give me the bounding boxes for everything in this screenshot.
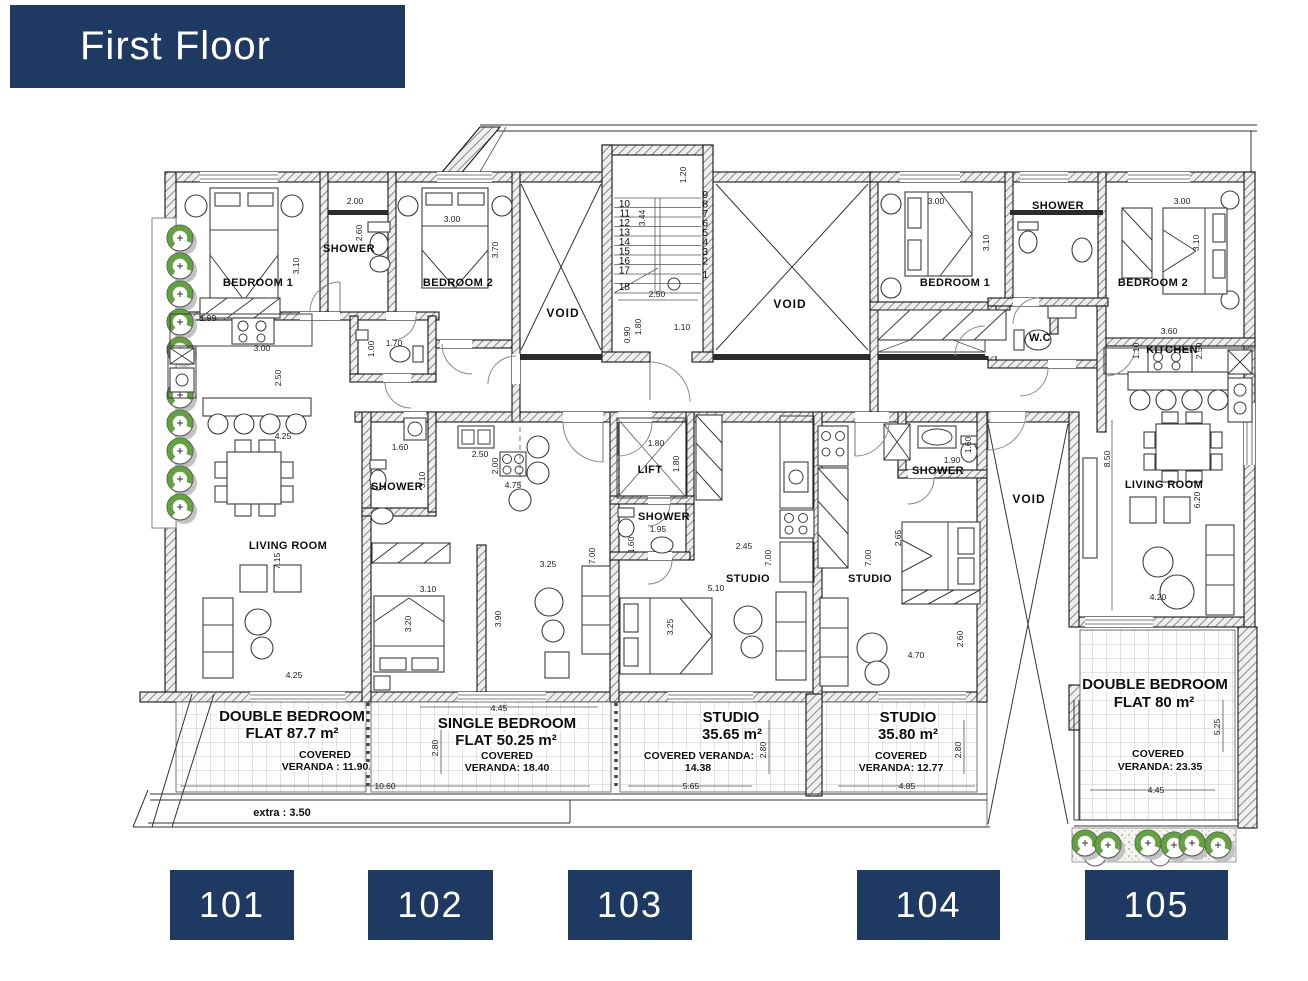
svg-text:6.20: 6.20 — [1192, 491, 1202, 508]
svg-text:7.15: 7.15 — [272, 552, 282, 569]
void-label-right: VOID — [773, 297, 806, 311]
room-label-bedroom2-101: BEDROOM 2 — [423, 277, 493, 289]
svg-text:2.45: 2.45 — [736, 541, 753, 551]
room-label-bedroom2-105: BEDROOM 2 — [1118, 277, 1188, 289]
svg-text:FLAT 50.25 m²: FLAT 50.25 m² — [455, 732, 556, 749]
svg-text:3.00: 3.00 — [444, 214, 461, 224]
room-label-lift: LIFT — [638, 464, 663, 476]
room-label-bedroom1-101: BEDROOM 1 — [223, 277, 293, 289]
svg-text:2.80: 2.80 — [758, 741, 768, 758]
svg-text:3.20: 3.20 — [403, 615, 413, 632]
parapet-edge — [438, 125, 1257, 177]
svg-text:2.50: 2.50 — [472, 449, 489, 459]
svg-text:3.90: 3.90 — [493, 610, 503, 627]
svg-text:35.80 m²: 35.80 m² — [878, 726, 938, 743]
svg-text:1.70: 1.70 — [386, 338, 403, 348]
svg-text:3.25: 3.25 — [540, 559, 557, 569]
void-label-left: VOID — [546, 306, 579, 320]
svg-text:3.10: 3.10 — [981, 234, 991, 251]
svg-text:2.00: 2.00 — [490, 457, 500, 474]
svg-text:1.60: 1.60 — [392, 442, 409, 452]
room-label-shower-102: SHOWER — [371, 481, 423, 493]
svg-text:1.20: 1.20 — [678, 166, 688, 183]
svg-text:VERANDA : 11.90: VERANDA : 11.90 — [282, 761, 369, 773]
void-label-tall: VOID — [1012, 492, 1045, 506]
svg-text:4.45: 4.45 — [1148, 785, 1165, 795]
room-label-bedroom1-105: BEDROOM 1 — [920, 277, 990, 289]
svg-text:1.95: 1.95 — [650, 524, 667, 534]
svg-text:14.38: 14.38 — [685, 762, 711, 774]
room-label-studio-103: STUDIO — [726, 573, 770, 585]
extra-note: extra : 3.50 — [253, 807, 310, 819]
stair-numbers: 10 11 12 13 14 15 16 17 18 9 8 7 6 5 4 3… — [619, 190, 709, 293]
svg-text:2.80: 2.80 — [953, 741, 963, 758]
svg-text:3.70: 3.70 — [490, 241, 500, 258]
svg-text:1.60: 1.60 — [963, 436, 973, 453]
svg-text:4.25: 4.25 — [286, 670, 303, 680]
svg-text:3.25: 3.25 — [665, 618, 675, 635]
room-label-living-105: LIVING ROOM — [1125, 479, 1203, 491]
room-label-studio-104: STUDIO — [848, 573, 892, 585]
room-label-wc-105: W.C — [1029, 332, 1051, 344]
svg-text:2.00: 2.00 — [347, 196, 364, 206]
svg-text:1.00: 1.00 — [366, 340, 376, 357]
svg-text:FLAT 87.7 m²: FLAT 87.7 m² — [245, 725, 338, 742]
furniture-103 — [617, 415, 814, 680]
room-label-kitchen-105: KITCHEN — [1146, 344, 1198, 356]
svg-text:1.10: 1.10 — [674, 322, 691, 332]
floor-plan-drawing: BEDROOM 1 SHOWER BEDROOM 2 LIVING ROOM V… — [0, 0, 1308, 981]
svg-text:0.90: 0.90 — [622, 326, 632, 343]
svg-text:VERANDA: 23.35: VERANDA: 23.35 — [1118, 761, 1203, 773]
room-label-shower-103: SHOWER — [638, 511, 690, 523]
svg-text:4.20: 4.20 — [1150, 592, 1167, 602]
svg-text:3.10: 3.10 — [1191, 234, 1201, 251]
floor-plan-page: First Floor — [0, 0, 1308, 981]
flat-103-veranda: COVERED VERANDA: — [644, 750, 754, 762]
svg-text:1.80: 1.80 — [671, 455, 681, 472]
svg-text:2: 2 — [702, 257, 708, 268]
svg-text:1.80: 1.80 — [633, 318, 643, 335]
svg-text:VERANDA: 12.77: VERANDA: 12.77 — [859, 762, 944, 774]
svg-text:2.80: 2.80 — [430, 739, 440, 756]
room-label-shower-104: SHOWER — [912, 465, 964, 477]
svg-text:4.70: 4.70 — [908, 650, 925, 660]
svg-text:7.00: 7.00 — [863, 549, 873, 566]
svg-text:1: 1 — [702, 270, 708, 281]
svg-text:3.10: 3.10 — [291, 257, 301, 274]
flat-105-veranda: COVERED — [1132, 748, 1184, 760]
flat-101-label: DOUBLE BEDROOM — [219, 708, 365, 725]
svg-text:7.00: 7.00 — [763, 549, 773, 566]
flat-104-veranda: COVERED — [875, 750, 927, 762]
svg-text:2.50: 2.50 — [1194, 342, 1204, 359]
svg-text:1.80: 1.80 — [648, 438, 665, 448]
svg-text:FLAT 80 m²: FLAT 80 m² — [1114, 694, 1195, 711]
svg-text:2.50: 2.50 — [273, 369, 283, 386]
room-label-shower-105: SHOWER — [1032, 200, 1084, 212]
svg-text:4.75: 4.75 — [505, 480, 522, 490]
svg-text:2.60: 2.60 — [955, 630, 965, 647]
room-label-shower-101: SHOWER — [323, 243, 375, 255]
svg-text:1.90: 1.90 — [944, 455, 961, 465]
svg-text:3.60: 3.60 — [1161, 326, 1178, 336]
svg-text:5.10: 5.10 — [708, 583, 725, 593]
svg-text:3.10: 3.10 — [417, 471, 427, 488]
svg-text:2.65: 2.65 — [893, 529, 903, 546]
svg-text:4.25: 4.25 — [275, 431, 292, 441]
flat-101-veranda: COVERED — [299, 749, 351, 761]
flat-103-label: STUDIO — [703, 709, 760, 726]
svg-text:17: 17 — [619, 266, 631, 277]
svg-text:2.50: 2.50 — [649, 289, 666, 299]
svg-text:10.60: 10.60 — [374, 781, 396, 791]
svg-text:18: 18 — [619, 282, 631, 293]
svg-text:2.60: 2.60 — [354, 224, 364, 241]
svg-text:4.85: 4.85 — [899, 781, 916, 791]
svg-text:5.65: 5.65 — [683, 781, 700, 791]
flat-104-label: STUDIO — [880, 709, 937, 726]
svg-text:4.45: 4.45 — [491, 703, 508, 713]
svg-text:5.25: 5.25 — [1212, 718, 1222, 735]
svg-text:7.00: 7.00 — [587, 547, 597, 564]
svg-text:3.00: 3.00 — [254, 343, 271, 353]
svg-text:1.10: 1.10 — [1131, 342, 1141, 359]
svg-text:3.00: 3.00 — [928, 196, 945, 206]
room-label-living-101: LIVING ROOM — [249, 540, 327, 552]
svg-text:VERANDA: 18.40: VERANDA: 18.40 — [465, 762, 550, 774]
flat-105-label: DOUBLE BEDROOM — [1082, 676, 1228, 693]
svg-text:1.99: 1.99 — [200, 313, 217, 323]
svg-text:3.10: 3.10 — [420, 584, 437, 594]
svg-text:8.50: 8.50 — [1102, 450, 1112, 467]
svg-text:3.44: 3.44 — [637, 209, 647, 226]
svg-text:3.00: 3.00 — [1174, 196, 1191, 206]
flat-102-label: SINGLE BEDROOM — [438, 715, 576, 732]
svg-text:1.60: 1.60 — [626, 536, 636, 553]
svg-text:35.65 m²: 35.65 m² — [702, 726, 762, 743]
flat-102-veranda: COVERED — [481, 750, 533, 762]
